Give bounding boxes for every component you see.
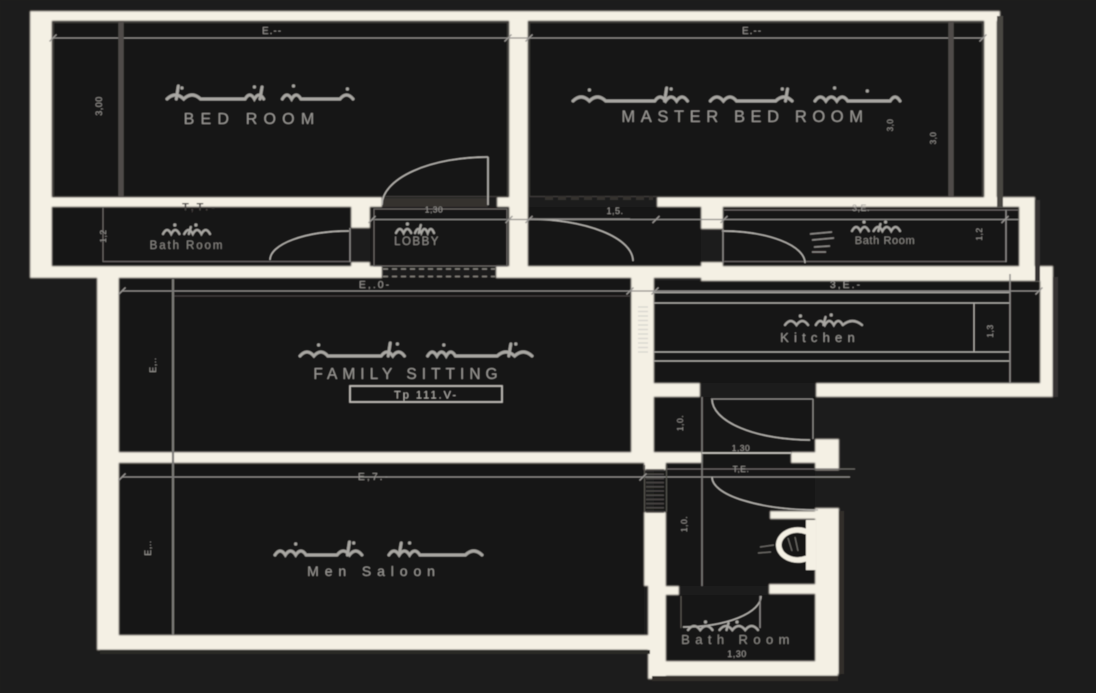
svg-text:T,T.-: T,T.-	[182, 202, 218, 214]
svg-text:1,30: 1,30	[727, 649, 747, 659]
svg-text:3,0: 3,0	[886, 119, 895, 132]
svg-text:3,E.: 3,E.	[852, 203, 870, 213]
svg-text:Tp 111.V-: Tp 111.V-	[394, 390, 458, 402]
svg-text:1,3: 1,3	[985, 324, 995, 337]
svg-text:FAMILY SITTING: FAMILY SITTING	[313, 366, 502, 383]
svg-text:E,..: E,..	[148, 357, 158, 373]
svg-text:E,7.-: E,7.-	[358, 471, 390, 483]
svg-text:LOBBY: LOBBY	[394, 236, 440, 248]
svg-text:1,2: 1,2	[974, 227, 984, 240]
svg-text:Bath Room: Bath Room	[150, 240, 225, 252]
svg-text:3,0: 3,0	[929, 132, 938, 145]
svg-text:3,00: 3,00	[94, 96, 104, 116]
svg-text:1,5.: 1,5.	[606, 206, 623, 216]
svg-text:1,30: 1,30	[732, 443, 751, 453]
svg-text:Bath Room: Bath Room	[855, 235, 915, 247]
svg-text:3,E.-: 3,E.-	[830, 279, 862, 291]
svg-text:Kitchen: Kitchen	[780, 330, 860, 345]
svg-text:MASTER BED ROOM: MASTER BED ROOM	[621, 108, 868, 126]
svg-text:1,0.: 1,0.	[679, 516, 689, 532]
svg-text:T,E.: T,E.	[733, 464, 750, 474]
svg-text:Bath Room: Bath Room	[681, 632, 795, 647]
svg-text:1,2: 1,2	[98, 229, 108, 242]
svg-text:Men Saloon: Men Saloon	[307, 563, 441, 579]
svg-text:E,.0-: E,.0-	[359, 279, 391, 291]
svg-text:E.--: E.--	[262, 26, 282, 37]
svg-text:1,0.: 1,0.	[675, 415, 685, 431]
svg-text:E.--: E.--	[742, 26, 762, 37]
svg-text:BED ROOM: BED ROOM	[184, 111, 321, 128]
svg-text:E,..: E,..	[143, 540, 153, 556]
svg-text:1,30: 1,30	[425, 205, 444, 215]
